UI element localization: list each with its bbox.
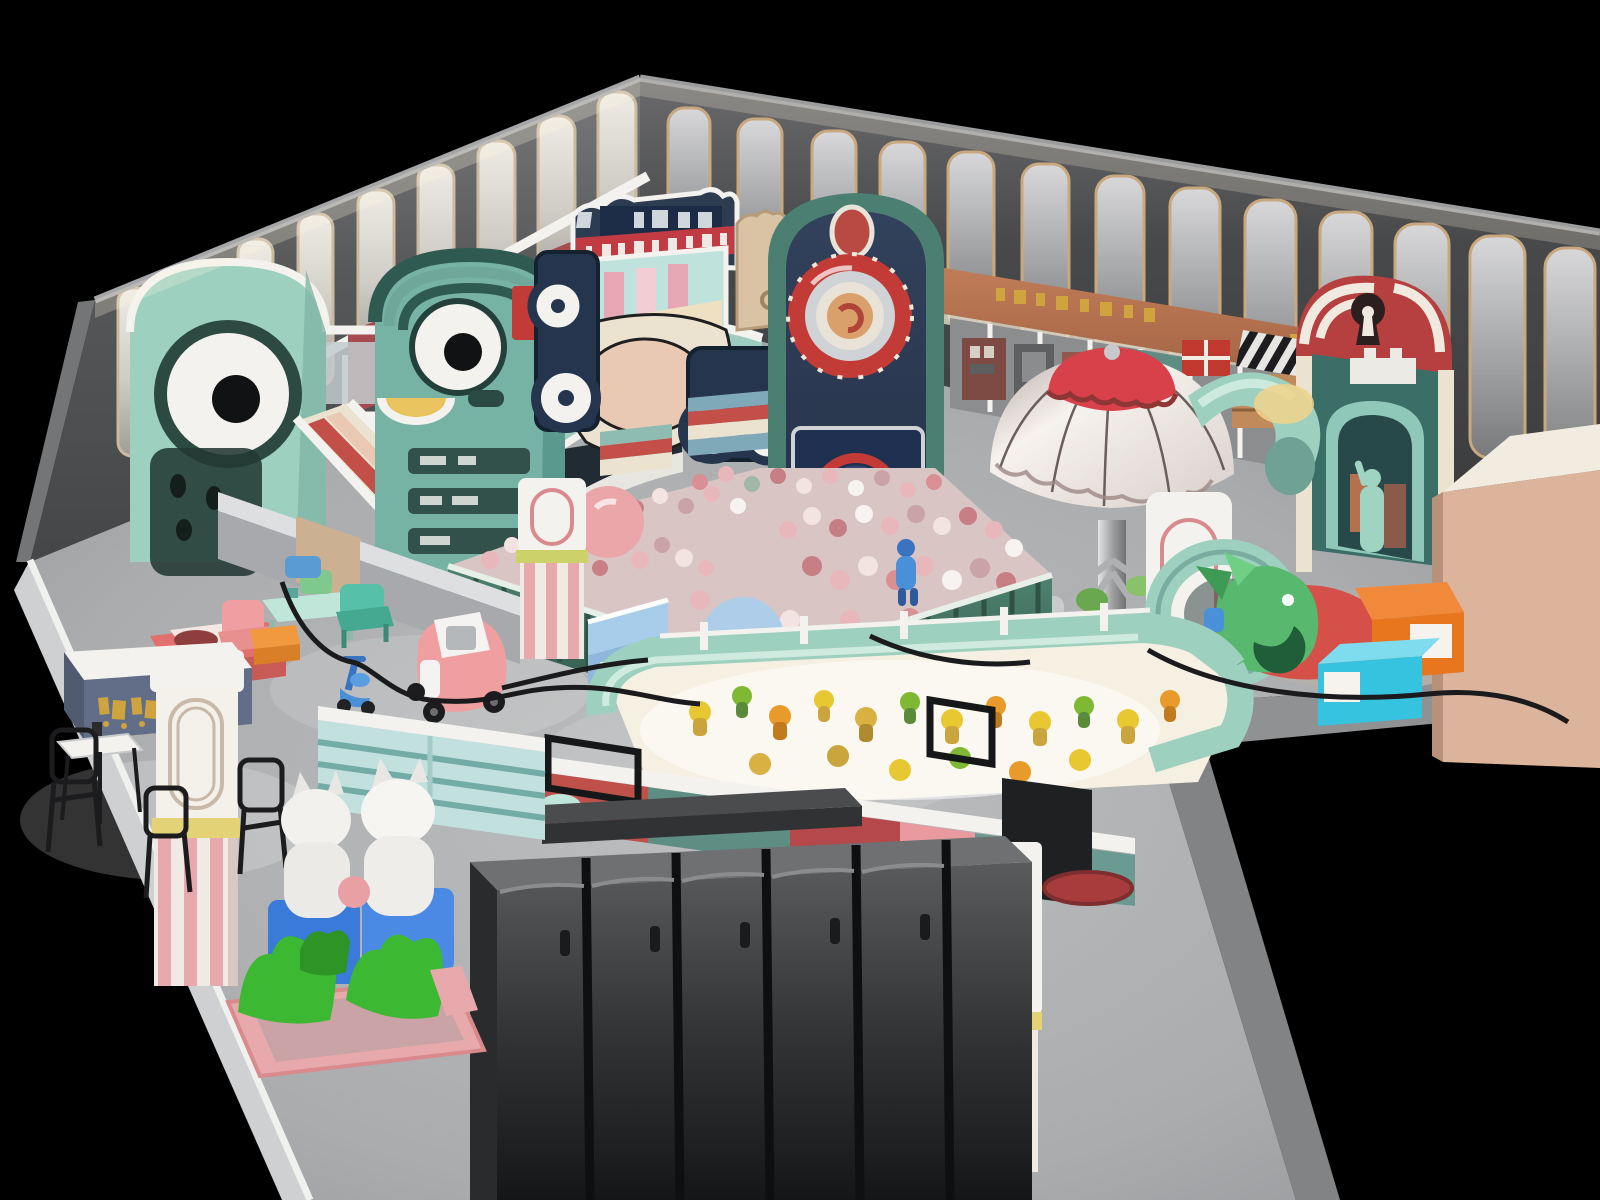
column-stripes	[158, 838, 223, 986]
red-ring-porthole	[788, 254, 912, 378]
cyan-block	[1318, 638, 1440, 726]
red-round-table	[1044, 872, 1132, 904]
scene-canvas	[0, 0, 1600, 1200]
top-oval	[832, 207, 872, 257]
tube-glow	[1254, 384, 1314, 424]
playground-render	[0, 0, 1600, 1200]
face-cheek-pill	[468, 390, 504, 407]
eye-pupil	[212, 375, 260, 423]
orange-stool	[250, 625, 300, 665]
arched-column	[150, 650, 244, 986]
striped-corner-column	[516, 478, 588, 659]
blue-chair	[285, 556, 321, 578]
castle-gate	[1296, 276, 1454, 572]
car-cutout-left	[532, 252, 598, 430]
pink-ball-prop	[338, 876, 370, 908]
red-window-frame	[1182, 340, 1230, 376]
